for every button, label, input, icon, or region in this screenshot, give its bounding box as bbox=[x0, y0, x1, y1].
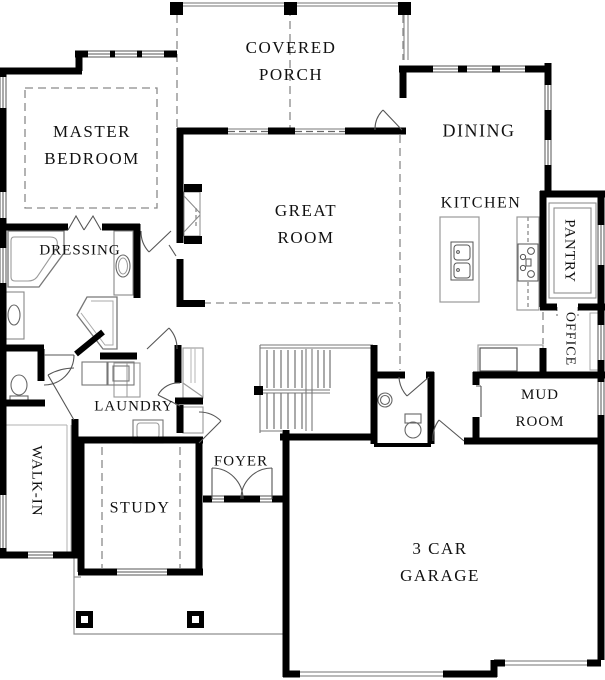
powder-south-edge bbox=[374, 443, 431, 447]
room-label-office: OFFICE bbox=[557, 312, 584, 366]
porch-posts bbox=[76, 2, 411, 628]
porch-post bbox=[170, 2, 183, 15]
room-label-study: STUDY bbox=[110, 495, 171, 522]
room-label-walk-in: WALK-IN bbox=[23, 445, 50, 516]
floor-plan-drawing bbox=[0, 0, 605, 680]
room-label-master-bedroom: MASTER BEDROOM bbox=[44, 118, 140, 172]
powder-door bbox=[399, 377, 429, 396]
room-label-dining: DINING bbox=[443, 118, 516, 145]
hall-door bbox=[147, 328, 177, 349]
master-hall-door bbox=[141, 231, 171, 252]
shower-icon bbox=[77, 297, 117, 349]
stairs bbox=[254, 345, 373, 433]
porch-roof-edge-right bbox=[404, 8, 408, 60]
room-label-pantry: PANTRY bbox=[556, 219, 583, 283]
coat-closet bbox=[183, 407, 203, 433]
porch-post bbox=[398, 2, 411, 15]
island-sink-icon bbox=[451, 242, 473, 280]
range-icon bbox=[518, 244, 538, 281]
porch-post bbox=[284, 2, 297, 15]
master-double-door bbox=[68, 216, 101, 230]
floor-plan: COVERED PORCH MASTER BEDROOM DINING GREA… bbox=[0, 0, 605, 680]
powder-room-fixtures bbox=[378, 393, 421, 438]
room-label-foyer: FOYER bbox=[214, 449, 268, 476]
vanity-left bbox=[6, 292, 24, 339]
dashed-boundaries bbox=[25, 8, 578, 568]
office-counter bbox=[590, 313, 598, 370]
room-label-laundry: LAUNDRY bbox=[94, 394, 174, 421]
room-label-covered-porch: COVERED PORCH bbox=[246, 34, 337, 88]
room-label-great-room: GREAT ROOM bbox=[275, 197, 337, 251]
toilet-icon bbox=[11, 375, 27, 395]
stair-newel-post bbox=[254, 386, 263, 395]
window bbox=[88, 50, 164, 58]
room-label-mud-room: MUD ROOM bbox=[508, 382, 573, 436]
hall-closets bbox=[183, 348, 203, 433]
porch-door bbox=[375, 110, 402, 130]
mudroom-door bbox=[476, 386, 481, 417]
greatroom-niche bbox=[184, 192, 200, 236]
kitchen-fixtures bbox=[440, 217, 539, 310]
mud-cubby bbox=[480, 348, 517, 371]
thin-outlines bbox=[74, 3, 410, 634]
stair-rail bbox=[258, 390, 330, 393]
washer-icon bbox=[82, 362, 107, 385]
sink-icon bbox=[8, 305, 20, 325]
room-label-kitchen: KITCHEN bbox=[441, 190, 522, 217]
room-label-garage: 3 CAR GARAGE bbox=[400, 535, 480, 589]
walkin-door bbox=[48, 368, 74, 420]
room-label-dressing: DRESSING bbox=[39, 238, 120, 265]
niche-access-door bbox=[169, 245, 176, 256]
garage-entry-door bbox=[433, 420, 464, 441]
